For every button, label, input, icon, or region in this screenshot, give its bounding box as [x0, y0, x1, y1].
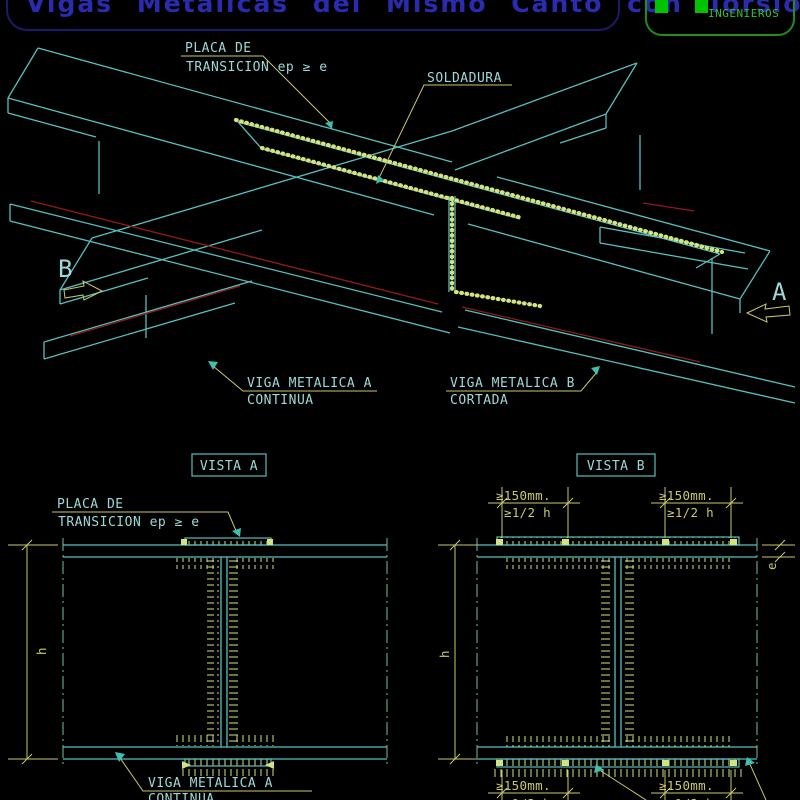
vista-a-title-text: VISTA A	[200, 459, 258, 474]
vista-b-title: VISTA B	[577, 454, 655, 476]
dim-h-text: h	[34, 647, 49, 655]
logo-mark-right	[695, 0, 708, 13]
fillet-lines	[31, 201, 700, 362]
viga-a-line1: VIGA METALICA A	[247, 376, 372, 391]
marker-a-letter: A	[772, 278, 787, 306]
vista-b-centerlines	[477, 538, 757, 764]
weld-hatch	[623, 560, 635, 746]
vista-b-top-plate	[497, 537, 739, 545]
weld-hatch	[502, 558, 610, 569]
vista-a-centerlines	[63, 538, 387, 764]
viga-b-line2: CORTADA	[450, 393, 508, 408]
weld-mark	[496, 539, 737, 766]
cad-drawing: Vigas Metalicas del Mismo Canto con Tors…	[0, 0, 800, 800]
dim-150-text: ≥150mm.	[659, 488, 714, 503]
arrow-left-icon	[747, 304, 790, 322]
beam-b-right-outline	[458, 177, 795, 403]
weld-hatch	[492, 767, 744, 777]
vista-b-dim-h: h	[437, 540, 477, 764]
viga-a-line2: CONTINUA	[247, 393, 314, 408]
viga-leader-arrow-icon	[115, 752, 125, 762]
dim-half-h-text: ≥1/2 h	[504, 505, 551, 520]
beam-a-right-outline	[452, 63, 748, 269]
weld-hatch	[626, 558, 734, 569]
dim-h-text: h	[437, 650, 452, 658]
cad-canvas: Vigas Metalicas del Mismo Canto con Tors…	[0, 0, 800, 800]
weld-hatch	[601, 560, 613, 746]
vista-a-placa-label: PLACA DE TRANSICION ep ≥ e	[52, 497, 241, 537]
view-marker-a: A	[747, 278, 790, 322]
dim-e-text: e	[764, 562, 779, 570]
drawing-title: Vigas Metalicas del Mismo Canto con Tors…	[26, 0, 800, 18]
dim-half-h-text: ≥1/2 h	[504, 796, 551, 800]
weld-hatch	[207, 560, 219, 746]
weld-hatch	[229, 560, 241, 746]
vista-b-title-text: VISTA B	[587, 459, 645, 474]
dim-150-text: ≥150mm.	[496, 778, 551, 793]
vista-a-top-plate	[185, 538, 271, 545]
logo-text: INGENIEROS	[708, 7, 779, 20]
soldadura-label: SOLDADURA	[427, 71, 502, 86]
weld-hatch	[626, 736, 734, 747]
arrow-right-icon	[64, 281, 102, 300]
title-bar: Vigas Metalicas del Mismo Canto con Tors…	[7, 0, 800, 30]
vista-b-dim-e: e	[762, 540, 795, 570]
dim-half-h-text: ≥1/2 h	[667, 505, 714, 520]
weld-hatch	[180, 766, 276, 776]
logo-mark-left	[655, 0, 668, 13]
weld-mark	[267, 539, 273, 545]
weld-mark	[181, 539, 187, 545]
vista-a-beam-lines	[63, 545, 387, 759]
iso-soldadura-label: SOLDADURA	[376, 71, 512, 184]
dim-half-h-text: ≥1/2 h	[667, 796, 714, 800]
dim-150-text: ≥150mm.	[496, 488, 551, 503]
iso-view: PLACA DE TRANSICION ep ≥ e SOLDADURA VIG…	[8, 41, 795, 408]
placa-leader-arrow-icon	[232, 528, 241, 537]
iso-viga-a-label: VIGA METALICA A CONTINUA	[208, 361, 377, 408]
weld-hatch	[502, 736, 610, 747]
vista-b-beam-lines	[477, 545, 757, 759]
viga-label-line1: VIGA METALICA A	[148, 776, 273, 791]
placa-label-line1: PLACA DE	[57, 497, 124, 512]
vista-b-bottom-plate	[497, 759, 739, 767]
placa-label-line2: TRANSICION ep ≥ e	[186, 60, 328, 75]
vista-b-top-dims: ≥150mm. ≥1/2 h ≥150mm. ≥1/2 h	[488, 487, 743, 538]
vista-a-dim-h: h	[8, 540, 58, 764]
marker-b-letter: B	[58, 255, 72, 283]
iso-placa-label: PLACA DE TRANSICION ep ≥ e	[181, 41, 333, 129]
iso-viga-b-label: VIGA METALICA B CORTADA	[446, 366, 600, 408]
placa-label-line1: PLACA DE	[185, 41, 252, 56]
vista-a-title: VISTA A	[192, 454, 266, 476]
viga-label-line2: CONTINUA	[148, 792, 215, 800]
dim-150-text: ≥150mm.	[659, 778, 714, 793]
placa-label-line2: TRANSICION ep ≥ e	[58, 515, 200, 530]
vista-a: VISTA A h PLACA DE TRANSICION ep ≥ e	[8, 454, 387, 800]
vista-b: VISTA B ≥150mm. ≥1/2 h ≥150mm. ≥1/2 h e	[437, 454, 795, 800]
viga-b-line1: VIGA METALICA B	[450, 376, 575, 391]
vista-a-bottom-plate	[185, 759, 271, 766]
